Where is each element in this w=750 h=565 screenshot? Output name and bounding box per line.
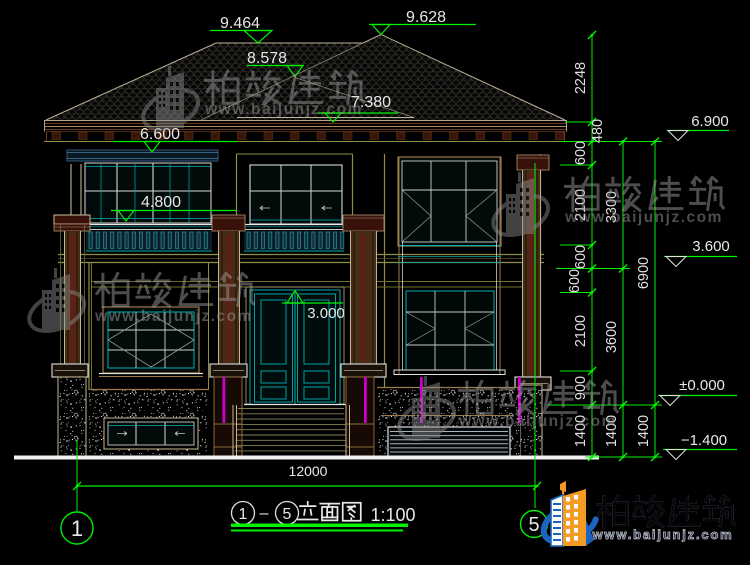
svg-text:5: 5: [283, 506, 292, 523]
svg-text:600: 600: [573, 245, 589, 269]
svg-text:2100: 2100: [573, 315, 589, 347]
svg-text:www.baijunjz.com: www.baijunjz.com: [458, 413, 617, 430]
svg-text:www.baijunjz.com: www.baijunjz.com: [592, 527, 734, 542]
svg-text:6900: 6900: [636, 257, 652, 289]
svg-text:www.baijunjz.com: www.baijunjz.com: [94, 308, 253, 325]
svg-text:2248: 2248: [573, 62, 589, 94]
svg-text:9.464: 9.464: [220, 15, 260, 32]
svg-text:600: 600: [567, 269, 583, 293]
svg-text:1: 1: [239, 506, 248, 523]
svg-text:1400: 1400: [636, 415, 652, 447]
svg-text:www.baijunjz.com: www.baijunjz.com: [204, 101, 363, 118]
svg-text:www.baijunjz.com: www.baijunjz.com: [564, 209, 723, 226]
svg-text:600: 600: [573, 141, 589, 165]
svg-text:3600: 3600: [604, 321, 620, 353]
svg-text:–: –: [260, 505, 269, 522]
svg-text:3.600: 3.600: [692, 238, 730, 255]
svg-text:±0.000: ±0.000: [679, 377, 725, 394]
svg-text:480: 480: [590, 119, 606, 143]
svg-text:12000: 12000: [289, 463, 328, 479]
svg-text:9.628: 9.628: [406, 9, 446, 26]
svg-text:8.578: 8.578: [247, 50, 287, 67]
svg-text:3.000: 3.000: [307, 305, 345, 322]
svg-text:1:100: 1:100: [370, 505, 415, 525]
svg-text:5: 5: [528, 514, 539, 536]
svg-text:1: 1: [71, 516, 83, 541]
svg-text:−1.400: −1.400: [681, 432, 727, 449]
svg-text:6.900: 6.900: [691, 113, 729, 130]
svg-text:4.800: 4.800: [141, 194, 181, 211]
